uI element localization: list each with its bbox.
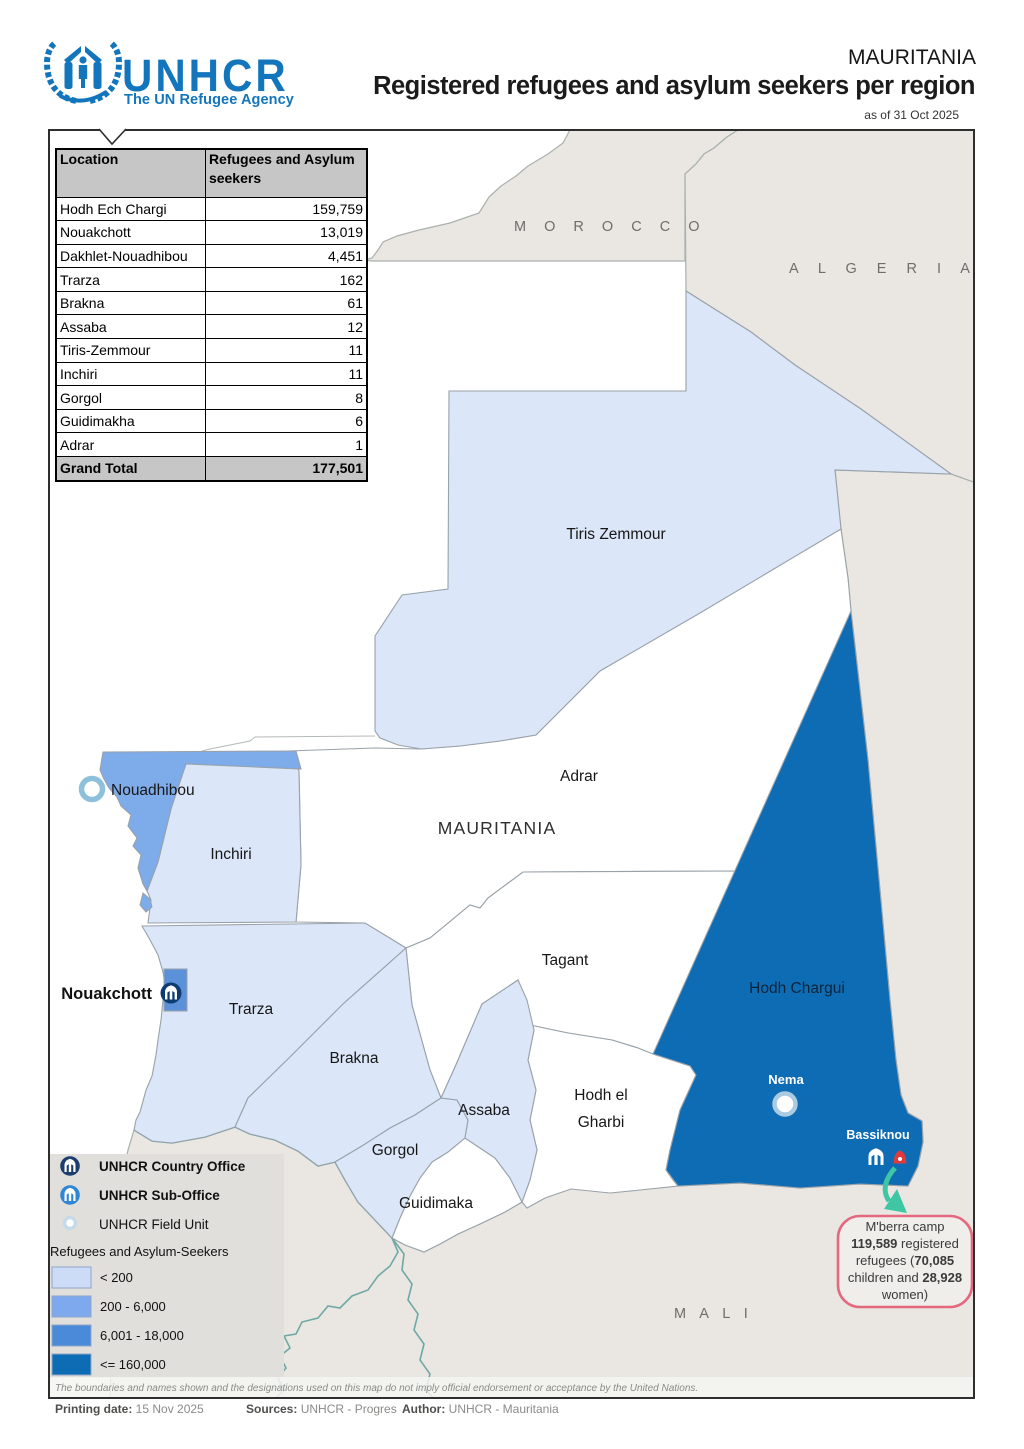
svg-text:Refugees and Asylum-Seekers: Refugees and Asylum-Seekers [50,1244,229,1259]
svg-text:< 200: < 200 [100,1270,133,1285]
svg-text:119,589 registered: 119,589 registered [851,1236,959,1251]
svg-text:<= 160,000: <= 160,000 [100,1357,166,1372]
svg-text:The boundaries and names shown: The boundaries and names shown and the d… [55,1383,698,1394]
svg-text:Tagant: Tagant [542,952,589,969]
svg-text:Trarza: Trarza [229,1001,274,1018]
svg-text:Hodh el: Hodh el [574,1087,627,1104]
svg-text:M'berra camp: M'berra camp [865,1219,944,1234]
svg-text:6,001 - 18,000: 6,001 - 18,000 [100,1328,184,1343]
svg-text:Hodh Chargui: Hodh Chargui [749,980,845,997]
svg-text:Gharbi: Gharbi [578,1114,625,1131]
svg-text:Adrar: Adrar [560,768,598,785]
svg-text:Guidimaka: Guidimaka [399,1195,473,1212]
svg-text:M O R O C C O: M O R O C C O [514,219,707,235]
svg-text:Inchiri: Inchiri [210,846,251,863]
svg-text:M A L I: M A L I [674,1306,753,1322]
svg-text:Gorgol: Gorgol [372,1142,419,1159]
svg-text:Brakna: Brakna [329,1050,378,1067]
svg-text:women): women) [881,1287,928,1302]
svg-text:Nouakchott: Nouakchott [61,985,152,1003]
svg-text:UNHCR Field Unit: UNHCR Field Unit [99,1217,209,1232]
svg-text:UNHCR Sub-Office: UNHCR Sub-Office [99,1188,220,1203]
svg-text:200 - 6,000: 200 - 6,000 [100,1299,166,1314]
svg-text:Assaba: Assaba [458,1102,510,1119]
svg-text:children and 28,928: children and 28,928 [848,1270,962,1285]
svg-text:Tiris Zemmour: Tiris Zemmour [566,526,665,543]
svg-text:Nouadhibou: Nouadhibou [111,782,195,799]
svg-text:MAURITANIA: MAURITANIA [438,818,557,838]
svg-text:refugees (70,085: refugees (70,085 [856,1253,954,1268]
svg-text:Nema: Nema [768,1072,804,1087]
svg-text:UNHCR Country Office: UNHCR Country Office [99,1159,246,1174]
svg-text:A L G E R I A: A L G E R I A [789,261,978,277]
svg-text:Bassiknou: Bassiknou [846,1128,909,1142]
